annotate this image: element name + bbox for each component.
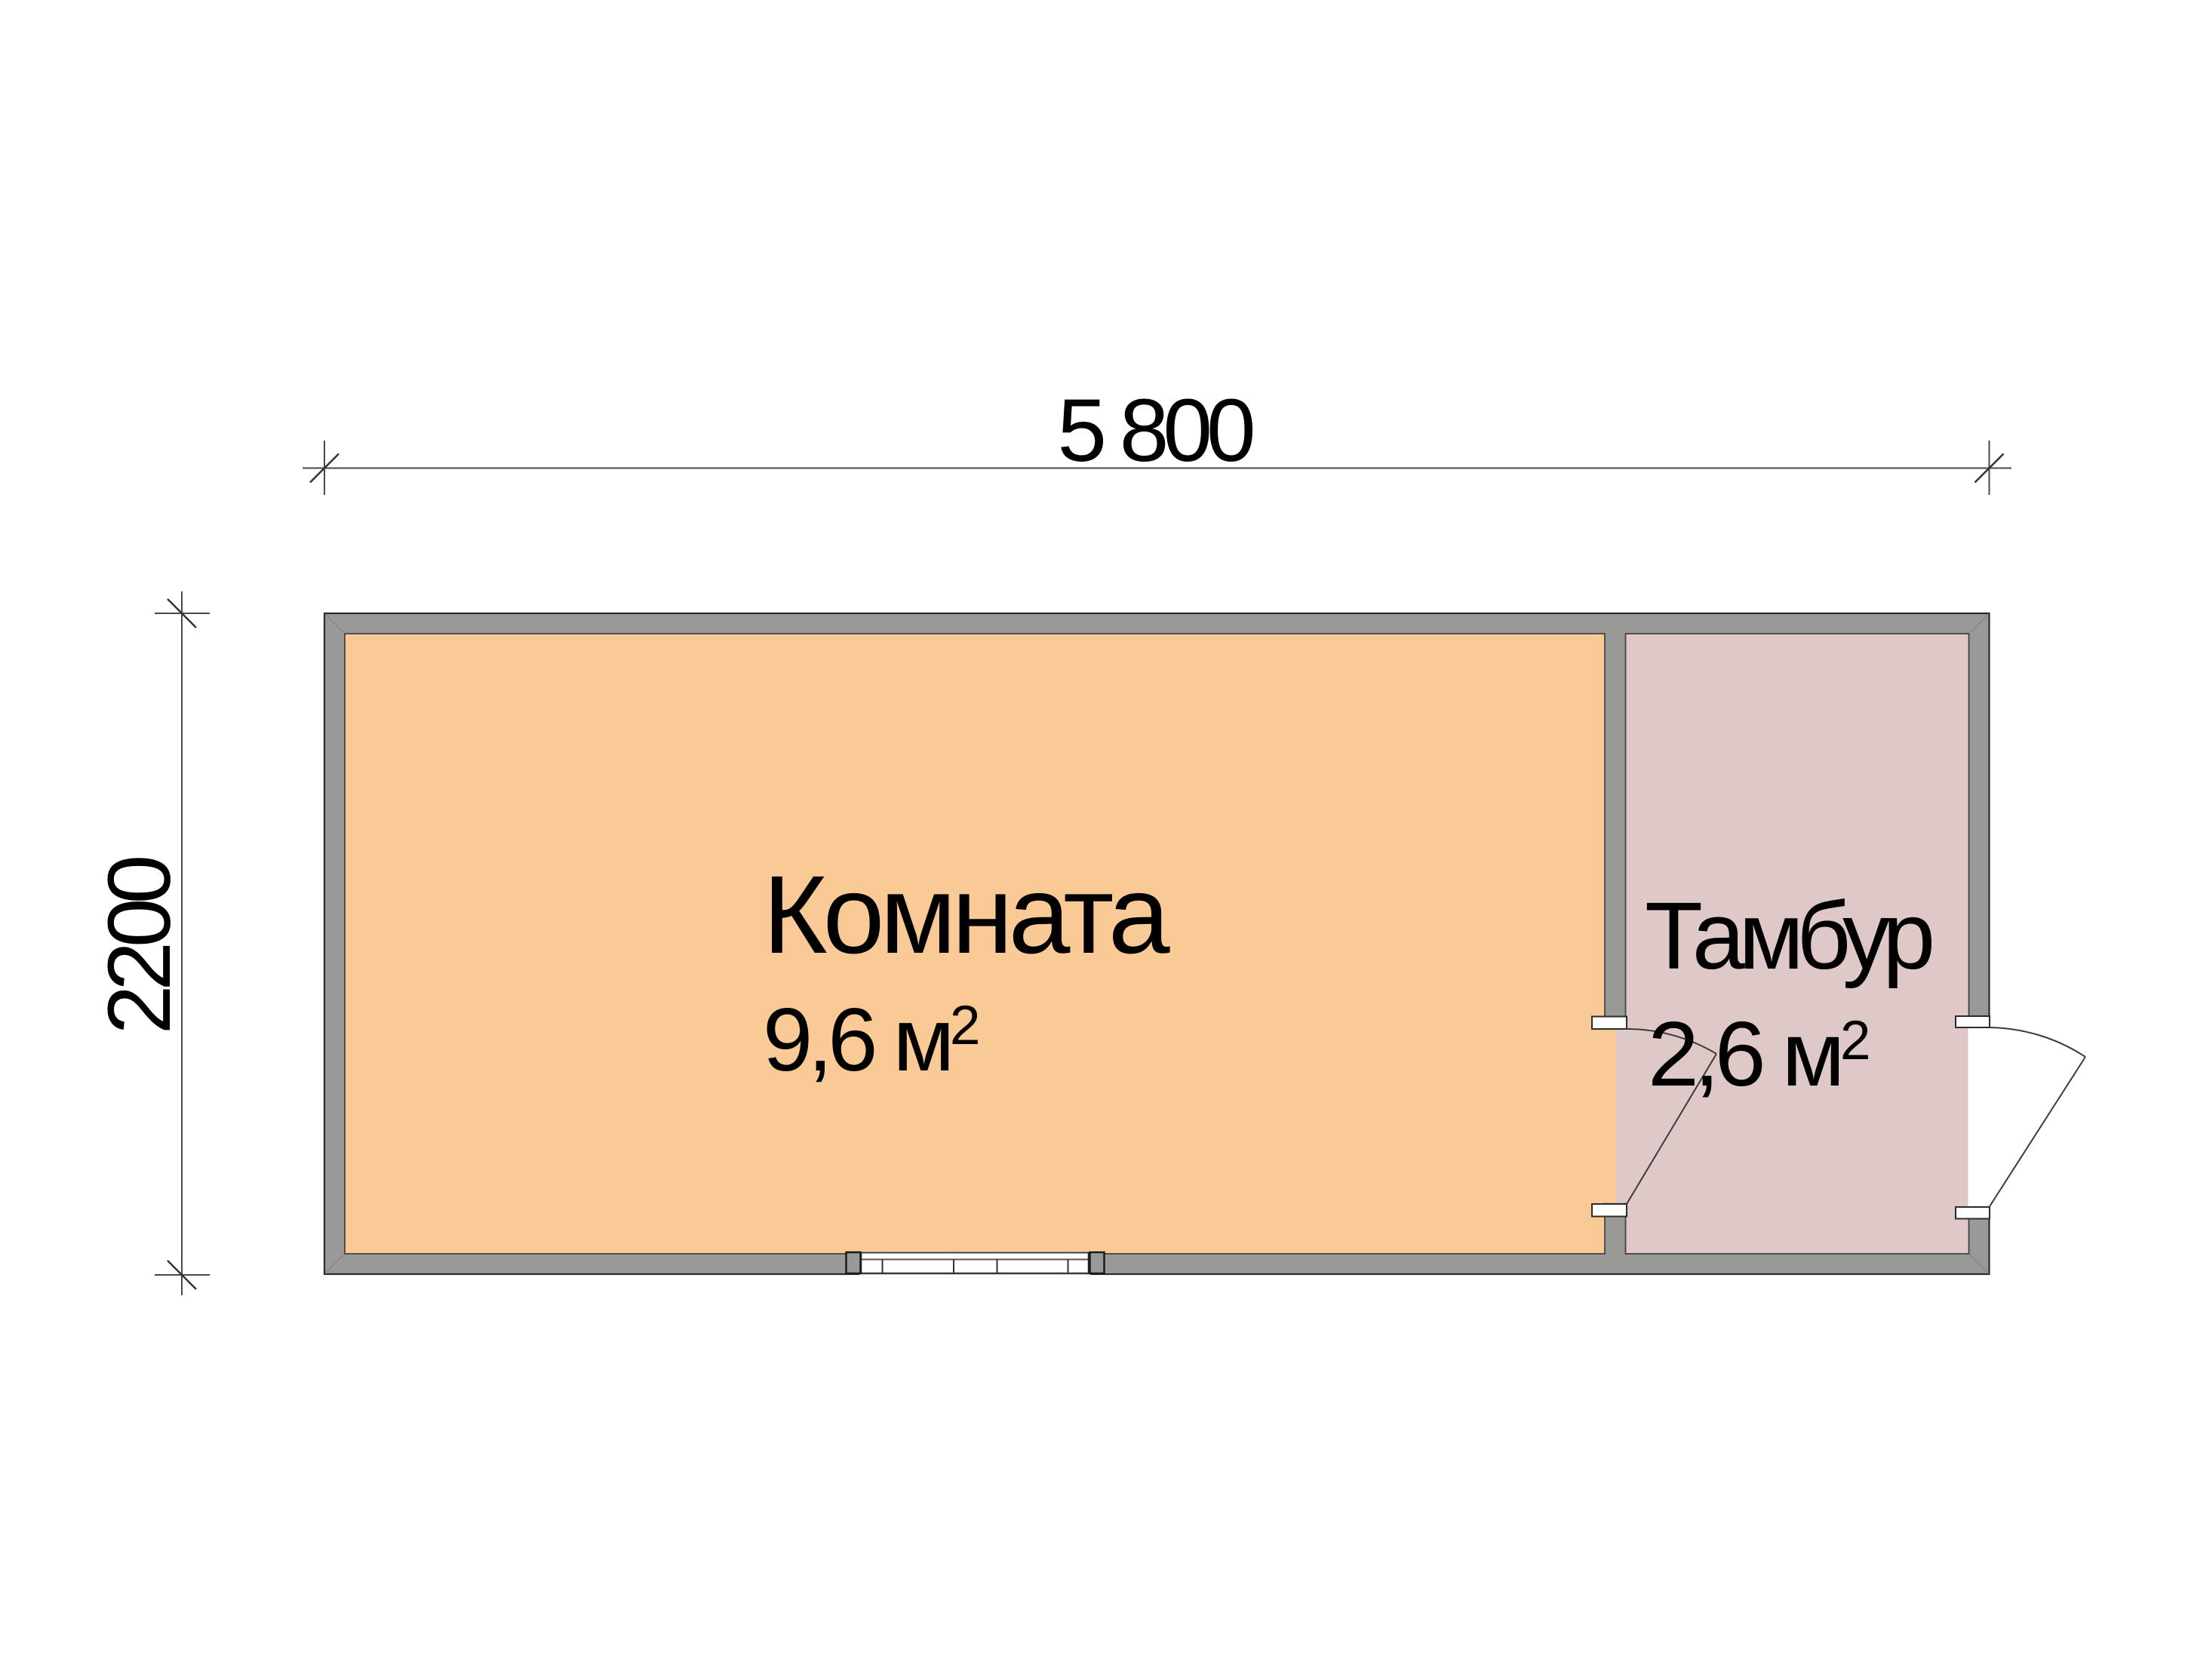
svg-text:9,6 м2: 9,6 м2 [763, 990, 978, 1090]
svg-text:2,6 м2: 2,6 м2 [1648, 1003, 1868, 1105]
svg-text:5 800: 5 800 [1057, 381, 1253, 481]
svg-text:Комната: Комната [763, 853, 1170, 977]
svg-text:2200: 2200 [90, 857, 189, 1034]
svg-text:Тамбур: Тамбур [1645, 883, 1931, 989]
